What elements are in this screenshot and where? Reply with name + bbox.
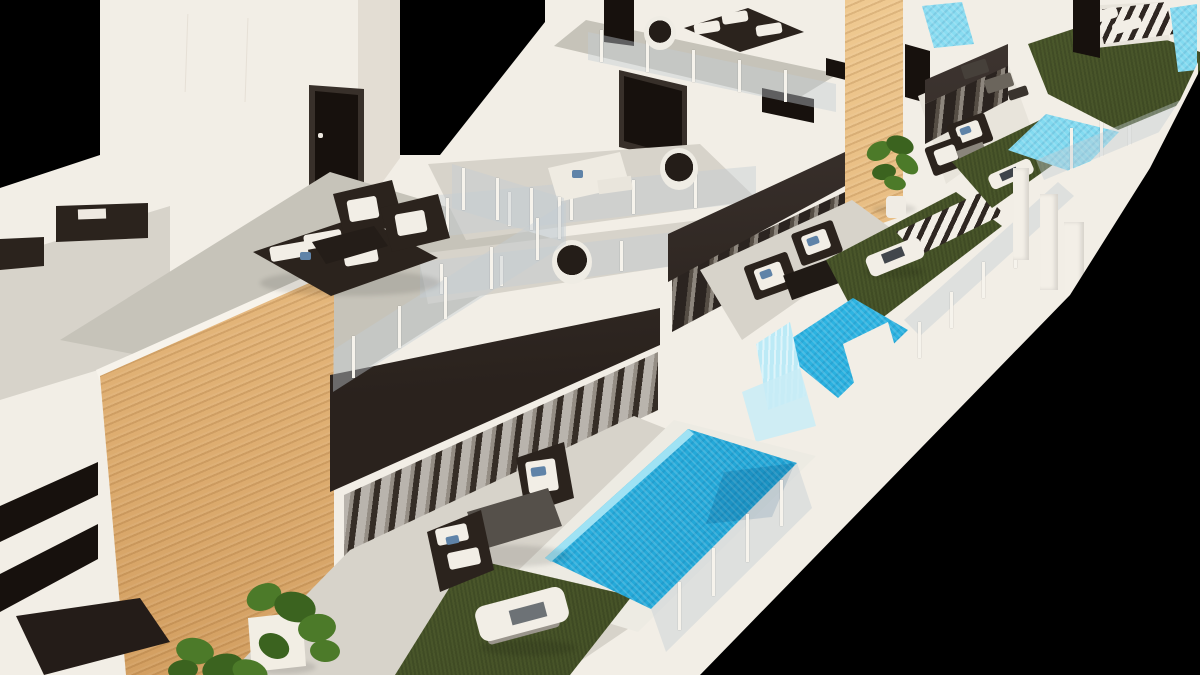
door-handle xyxy=(318,133,323,138)
plant-pot xyxy=(886,196,906,218)
balustrade-post xyxy=(462,168,465,210)
fence-post xyxy=(918,322,921,358)
fence-post xyxy=(982,262,985,298)
hanging-chair xyxy=(660,148,698,190)
stepped-pillar xyxy=(1040,194,1058,290)
balustrade-post xyxy=(352,336,355,378)
balustrade-post xyxy=(738,60,741,92)
balustrade-post xyxy=(620,241,623,271)
fence-post xyxy=(950,292,953,328)
balustrade-post xyxy=(496,178,499,220)
armchair-cushion xyxy=(525,458,559,494)
balustrade-post xyxy=(490,247,493,289)
balustrade-post xyxy=(784,70,787,102)
pool-fence-post xyxy=(780,480,783,526)
sofa-pillow-blue xyxy=(300,252,311,260)
balustrade-post xyxy=(632,180,635,214)
balustrade-post xyxy=(692,50,695,82)
balustrade-post xyxy=(536,218,539,260)
stepped-pillar xyxy=(1013,168,1029,260)
sofa-pillow-blue xyxy=(572,170,583,178)
balustrade-post xyxy=(444,277,447,319)
balustrade-post xyxy=(398,306,401,348)
kitchen-sink xyxy=(78,209,106,220)
balustrade-post xyxy=(600,30,603,62)
pool-fence-post xyxy=(746,514,749,562)
pool-fence-post xyxy=(712,548,715,596)
hanging-chair xyxy=(644,16,676,50)
pool-fence-post xyxy=(678,582,681,630)
render-canvas: Aerial 3D architectural render of a row … xyxy=(0,0,1200,675)
